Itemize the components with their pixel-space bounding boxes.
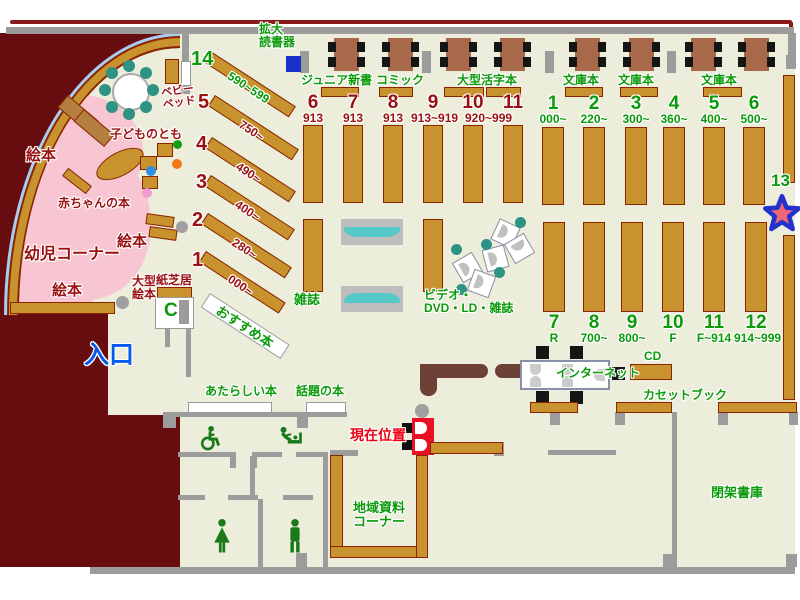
pillar <box>667 51 676 73</box>
stack-number-10: 10920~999 <box>451 93 495 125</box>
stack-number-12: 12914~999 <box>734 313 778 345</box>
star-icon <box>763 194 800 232</box>
booth-chair <box>494 267 505 278</box>
magnifier-reader-label: 拡大読書器 <box>259 23 295 49</box>
restroom-wall <box>230 452 236 468</box>
library-floor-map: 590~599 750~ 490~ 400~ 280~ 000~ おすすめ本 1… <box>0 0 800 600</box>
chair <box>106 101 118 113</box>
wall-entry-top <box>182 33 189 62</box>
reading-table <box>738 38 775 71</box>
entrance-label: 入口 <box>84 342 134 369</box>
shelf-number-5: 5 <box>198 91 209 114</box>
stack-number-2: 2220~ <box>572 94 616 126</box>
man-icon <box>284 518 306 554</box>
magnifier-reader-device <box>286 56 301 72</box>
bottom-shelf <box>616 402 672 413</box>
stack-bar <box>621 222 643 312</box>
stack-bar <box>663 127 685 205</box>
kamishibai-label: 紙芝居 <box>156 274 192 287</box>
cassette-book-label: カセットブック <box>643 389 727 402</box>
wall-pillar <box>615 412 625 425</box>
restroom-wall-right <box>323 452 328 567</box>
pillar <box>300 51 309 73</box>
marker-dot-blue <box>146 166 156 176</box>
restroom-wall <box>178 452 236 457</box>
stack-bar <box>343 125 363 203</box>
wall-corridor-right <box>186 327 191 377</box>
internet-label: インターネット <box>556 367 640 380</box>
reading-table <box>569 38 606 71</box>
shelf-number-2: 2 <box>192 209 203 232</box>
marker-dot-orange <box>172 159 182 169</box>
chair <box>106 67 118 79</box>
curved-display <box>341 219 403 245</box>
local-materials-shelf <box>330 455 343 558</box>
stack-number-13: 13 <box>771 172 790 190</box>
chair <box>123 108 135 120</box>
counter-side-shelf <box>430 442 503 454</box>
wall-shelf-right <box>783 75 795 183</box>
stack-number-6: 6913 <box>291 93 335 125</box>
baby-changing-icon <box>276 425 304 453</box>
toddler-corner-label: 幼児コーナー <box>24 246 120 263</box>
wall-bottom <box>90 567 795 574</box>
stack-bar <box>703 222 725 312</box>
shelf-number-3: 3 <box>196 171 207 194</box>
stack-bar <box>383 125 403 203</box>
terminal <box>530 364 541 375</box>
phone-icon: C <box>164 301 178 322</box>
step-shelf <box>157 143 173 157</box>
stack-number-4: 4360~ <box>652 94 696 126</box>
marker-dot-green <box>173 140 182 149</box>
closed-area-bottom-left <box>0 415 180 567</box>
wall-pillar <box>163 412 176 428</box>
wall-pillar <box>718 412 728 425</box>
bottom-shelf <box>718 402 797 413</box>
stack-number-8: 8913 <box>371 93 415 125</box>
comic-label: コミック <box>376 74 424 87</box>
chair <box>140 67 152 79</box>
picture-books-label: 絵本 <box>117 234 147 250</box>
wall-pillar <box>663 554 677 567</box>
service-counter <box>420 364 437 396</box>
new-books-shelf <box>188 402 272 413</box>
wall-pillar <box>550 412 560 425</box>
stack-room-wall <box>672 412 677 567</box>
stack-room-wall <box>548 450 616 455</box>
map-border-top <box>10 20 792 24</box>
stack-bar <box>583 127 605 205</box>
marker-dot-pink <box>142 188 152 198</box>
local-materials-shelf <box>416 455 428 558</box>
current-location-label: 現在位置 <box>350 428 406 443</box>
stack-number-11b: 11F~914 <box>692 313 736 345</box>
stack-number-1: 1000~ <box>531 94 575 126</box>
stack-bar <box>743 127 765 205</box>
wall-right <box>788 33 796 57</box>
wall-pillar <box>786 55 796 69</box>
baby-bed-label: ベビーベッド <box>161 84 197 112</box>
stack-number-10b: 10F <box>651 313 695 345</box>
reading-table <box>494 38 531 71</box>
closed-stacks-label: 閉架書庫 <box>711 486 763 500</box>
stack-number-11: 11 <box>491 93 535 112</box>
curved-display <box>341 286 403 312</box>
stack-bar <box>745 222 767 312</box>
picture-book-shelf-bottom <box>10 302 115 314</box>
booth-chair <box>481 239 492 250</box>
chair <box>536 346 549 359</box>
stack-bar <box>703 127 725 205</box>
wall-pillar <box>786 554 797 567</box>
restroom-wall <box>178 495 205 500</box>
shelf-number-14: 14 <box>191 48 213 71</box>
reading-table <box>328 38 365 71</box>
chair <box>570 346 583 359</box>
chair <box>123 60 135 72</box>
booth-chair <box>451 244 462 255</box>
picture-books-label: 絵本 <box>26 148 56 164</box>
stack-bar <box>543 222 565 312</box>
stack-bar <box>423 125 443 203</box>
pillar <box>545 51 554 73</box>
restroom-wall <box>296 553 307 567</box>
magazine-bar <box>303 219 323 292</box>
woman-icon <box>211 518 233 554</box>
bunko-label: 文庫本 <box>618 74 654 87</box>
reading-table <box>440 38 477 71</box>
table-top <box>334 38 359 71</box>
stack-number-7: 7913 <box>331 93 375 125</box>
video-bar <box>423 219 443 292</box>
booth-chair <box>515 217 526 228</box>
bunko-label: 文庫本 <box>563 74 599 87</box>
reading-table <box>623 38 660 71</box>
stack-number-5: 5400~ <box>692 94 736 126</box>
local-materials-shelf <box>330 546 428 558</box>
stack-bar <box>542 127 564 205</box>
pillar-dot <box>415 404 429 418</box>
pillar-dot <box>116 296 129 309</box>
stack-bar <box>503 125 523 203</box>
restroom-wall <box>250 456 255 499</box>
chair <box>140 101 152 113</box>
local-materials-label: 地域資料コーナー <box>353 501 405 529</box>
shelf-number-4: 4 <box>196 133 207 156</box>
stack-number-7b: 7R <box>532 313 576 345</box>
chair <box>147 84 159 96</box>
large-print-label: 大型活字本 <box>457 74 517 87</box>
bottom-shelf <box>530 402 578 413</box>
stack-bar <box>463 125 483 203</box>
kodomo-no-tomo-label: 子どものとも <box>110 128 182 141</box>
restroom-wall <box>228 495 258 500</box>
magazine-label: 雑誌 <box>294 293 320 307</box>
topic-books-shelf <box>306 402 346 413</box>
stack-bar <box>662 222 684 312</box>
stack-bar <box>303 125 323 203</box>
wall-corridor-left <box>165 327 170 347</box>
reading-table <box>685 38 722 71</box>
restroom-wall <box>258 499 263 567</box>
phone-booth: C <box>155 297 194 329</box>
wall-top <box>6 27 794 34</box>
reading-table <box>382 38 419 71</box>
topic-books-label: 話題の本 <box>296 385 344 398</box>
large-picture-books-label: 大型絵本 <box>132 275 156 301</box>
stack-number-9: 9913~919 <box>411 93 455 125</box>
chair <box>99 84 111 96</box>
cd-label: CD <box>644 350 661 363</box>
junior-shinsho-label: ジュニア新書 <box>301 74 372 87</box>
stack-number-6b: 6500~ <box>732 94 776 126</box>
terminal <box>530 376 541 387</box>
stack-number-9b: 9800~ <box>610 313 654 345</box>
step-shelf <box>142 176 158 189</box>
pillar <box>422 51 431 73</box>
stack-bar <box>625 127 647 205</box>
shelf-number-1: 1 <box>192 249 203 272</box>
picture-books-label: 絵本 <box>52 283 82 299</box>
wall-shelf-right <box>783 235 795 400</box>
wheelchair-icon <box>197 425 223 451</box>
wall-pillar <box>789 412 798 425</box>
baby-books-label: 赤ちゃんの本 <box>58 197 130 210</box>
baby-bed <box>165 59 179 84</box>
new-books-label: あたらしい本 <box>205 385 277 398</box>
pillar-dot <box>176 221 188 233</box>
restroom-wall <box>283 495 313 500</box>
bunko-label: 文庫本 <box>701 74 737 87</box>
video-dvd-label: ビデオ・DVD・LD・雑誌 <box>424 289 513 315</box>
pillar <box>179 300 189 324</box>
stack-bar <box>583 222 605 312</box>
